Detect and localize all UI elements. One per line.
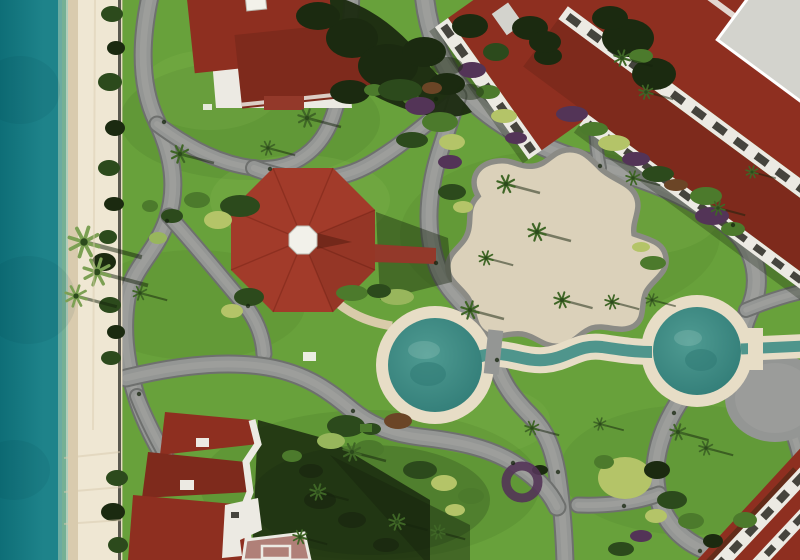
ground-object — [360, 424, 372, 432]
shrub — [632, 242, 650, 252]
shrub — [438, 155, 462, 169]
path-lamp — [165, 219, 169, 223]
path-lamp — [622, 504, 626, 508]
aerial-resort-photo — [0, 0, 800, 560]
path-lamp — [731, 223, 735, 227]
palm-crown — [610, 300, 614, 304]
shrub — [108, 537, 128, 553]
shrub — [491, 109, 517, 123]
shrub — [367, 284, 391, 298]
palm-crown — [468, 308, 472, 312]
shrub — [439, 134, 465, 150]
shrub — [296, 2, 340, 30]
shrub — [622, 152, 650, 166]
palm-crown — [504, 182, 508, 186]
sw-terrace-inset — [231, 512, 239, 518]
shrub — [98, 73, 122, 91]
palm-crown — [138, 291, 142, 295]
gazebo-cupola — [289, 226, 317, 254]
shrub — [104, 197, 124, 211]
path-lamp — [556, 470, 560, 474]
palm-crown — [395, 520, 399, 524]
tree-shadow — [431, 57, 463, 75]
shrub — [422, 112, 458, 132]
pool-highlight — [408, 341, 440, 359]
shrub — [396, 132, 428, 148]
shrub — [422, 82, 442, 94]
shrub — [608, 542, 634, 556]
shrub — [403, 461, 437, 479]
ground-object — [303, 352, 316, 361]
palm-crown — [598, 422, 601, 425]
palm-crown — [266, 146, 270, 150]
shrub — [149, 232, 167, 244]
shrub — [703, 534, 723, 548]
palm-crown — [716, 206, 720, 210]
path-lamp — [162, 120, 166, 124]
palm-crown — [750, 170, 753, 173]
palm-crown — [631, 176, 635, 180]
path-lamp — [511, 461, 515, 465]
shrub — [336, 285, 368, 301]
shrub — [678, 513, 704, 529]
shrub — [483, 43, 509, 61]
shrub — [657, 491, 687, 509]
shrub — [405, 97, 435, 115]
shrub — [384, 413, 412, 429]
shrub — [645, 509, 667, 523]
palm-crown — [316, 490, 320, 494]
tree-shadow — [456, 84, 484, 100]
shrub — [221, 304, 243, 318]
pool-highlight — [674, 330, 702, 346]
palm-crown — [560, 298, 564, 302]
palm-crown — [650, 298, 653, 301]
shrub — [330, 80, 370, 104]
shrub — [505, 132, 527, 144]
shrub — [556, 106, 588, 122]
shrub — [438, 184, 466, 200]
shrub — [107, 325, 125, 339]
villa-awning — [264, 96, 304, 110]
pool-depth-shading — [685, 349, 717, 371]
shrub — [642, 166, 674, 182]
shrub — [453, 201, 473, 213]
palm-crown — [676, 430, 680, 434]
path-lamp — [137, 392, 141, 396]
shrub — [452, 14, 488, 38]
path-lamp — [351, 409, 355, 413]
shrub — [101, 503, 125, 521]
palm-crown — [80, 238, 87, 245]
palm-crown — [305, 116, 309, 120]
shrub — [373, 538, 399, 552]
path-lamp — [434, 97, 438, 101]
shrub — [690, 187, 722, 205]
palm-crown — [298, 535, 302, 539]
shrub — [161, 209, 183, 223]
palm-crown — [530, 426, 534, 430]
pool-depth-shading — [410, 362, 446, 386]
shrub — [317, 433, 345, 449]
shrub — [594, 455, 614, 469]
shrub — [107, 41, 125, 55]
path-lamp — [434, 261, 438, 265]
shrub — [142, 200, 158, 212]
palm-crown — [535, 230, 539, 234]
sw-terrace-unit — [180, 480, 194, 490]
palm-crown — [620, 56, 624, 60]
palm-crown — [644, 90, 648, 94]
shrub — [733, 512, 757, 528]
shrub — [106, 470, 128, 486]
shrub — [644, 461, 670, 479]
path-lamp — [495, 358, 499, 362]
shrub — [105, 120, 125, 136]
palm-crown — [350, 450, 354, 454]
shrub — [299, 464, 323, 478]
shrub — [282, 450, 302, 462]
shrub — [101, 351, 121, 365]
shrub — [580, 122, 608, 136]
shrub — [529, 31, 561, 53]
ground-object — [203, 104, 212, 110]
path-lamp — [246, 304, 250, 308]
shrub — [338, 512, 366, 528]
shrub — [592, 6, 628, 30]
shrub — [431, 475, 457, 491]
shrub — [458, 488, 484, 504]
shrub — [204, 211, 232, 229]
path-lamp — [268, 167, 272, 171]
shrub — [101, 6, 123, 22]
scene-canvas — [0, 0, 800, 560]
palm-crown — [178, 152, 182, 156]
shrub — [445, 504, 465, 516]
palm-crown — [73, 293, 78, 298]
palm-crown — [704, 446, 708, 450]
path-lamp — [598, 164, 602, 168]
path-lamp — [698, 549, 702, 553]
palm-crown — [436, 530, 440, 534]
shrub — [640, 256, 666, 270]
path-lamp — [672, 411, 676, 415]
shrub — [184, 192, 210, 208]
pool-bridge-east — [748, 328, 763, 370]
villa-cupola — [245, 0, 266, 11]
shrub — [598, 135, 630, 151]
shrub — [234, 288, 264, 306]
shrub — [99, 230, 117, 244]
sw-terrace-unit — [196, 438, 209, 447]
shrub — [98, 160, 120, 176]
palm-crown — [484, 256, 488, 260]
shrub — [630, 530, 652, 542]
shrub — [664, 179, 688, 191]
